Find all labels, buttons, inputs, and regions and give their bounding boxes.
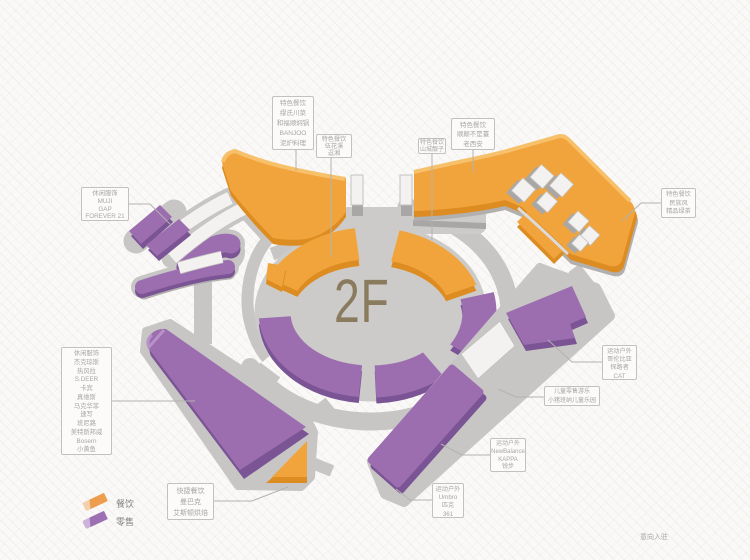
svg-text:2F: 2F [334,268,390,336]
